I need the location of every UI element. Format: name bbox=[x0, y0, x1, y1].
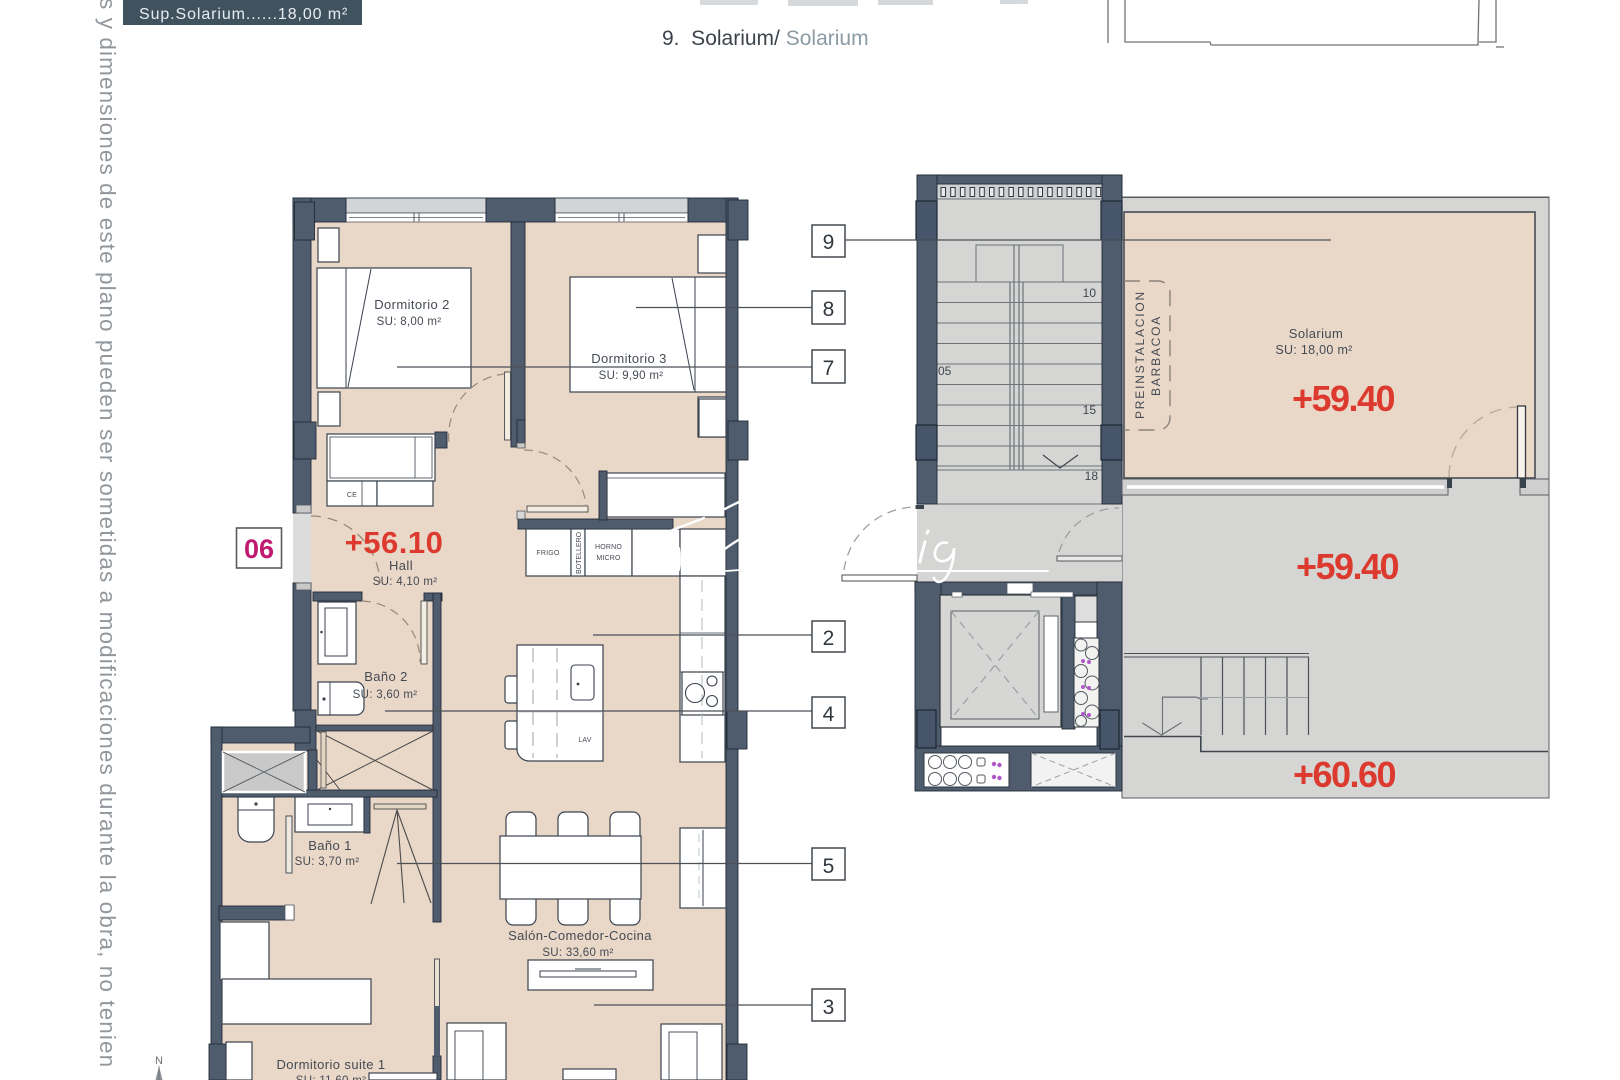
svg-text:4: 4 bbox=[823, 703, 835, 726]
svg-text:SU: 4,10 m²: SU: 4,10 m² bbox=[373, 576, 438, 588]
svg-text:SU: 3,60 m²: SU: 3,60 m² bbox=[353, 689, 418, 701]
svg-text:Baño 1: Baño 1 bbox=[308, 838, 352, 853]
svg-text:HORNO: HORNO bbox=[595, 544, 622, 551]
svg-text:Dormitorio 2: Dormitorio 2 bbox=[374, 297, 450, 312]
svg-text:3: 3 bbox=[823, 996, 835, 1019]
svg-text:+59.40: +59.40 bbox=[1292, 378, 1395, 419]
svg-text:10: 10 bbox=[1083, 286, 1097, 300]
svg-text:Salón-Comedor-Cocina: Salón-Comedor-Cocina bbox=[508, 928, 652, 943]
svg-text:N: N bbox=[155, 1055, 163, 1067]
svg-text:BOTELLERO: BOTELLERO bbox=[576, 531, 583, 574]
svg-text:5: 5 bbox=[823, 855, 835, 878]
svg-text:18: 18 bbox=[1085, 469, 1099, 483]
svg-text:FRIGO: FRIGO bbox=[536, 550, 560, 557]
svg-text:Solarium: Solarium bbox=[1289, 326, 1344, 341]
svg-text:s y dimensiones de este plano: s y dimensiones de este plano pueden ser… bbox=[95, 0, 120, 1068]
svg-text:+56.10: +56.10 bbox=[345, 525, 444, 560]
svg-text:PREINSTALACION: PREINSTALACION bbox=[1133, 290, 1147, 419]
svg-text:LAV: LAV bbox=[578, 737, 591, 744]
svg-text:SU: 18,00 m²: SU: 18,00 m² bbox=[1275, 343, 1352, 357]
svg-text:06: 06 bbox=[244, 534, 274, 564]
svg-text:2: 2 bbox=[823, 627, 835, 650]
svg-text:Sup.Solarium......18,00 m²: Sup.Solarium......18,00 m² bbox=[139, 6, 348, 23]
svg-text:9: 9 bbox=[823, 231, 835, 254]
svg-text:SU: 9,90 m²: SU: 9,90 m² bbox=[599, 370, 664, 382]
svg-text:SU: 3,70 m²: SU: 3,70 m² bbox=[295, 856, 360, 868]
svg-text:05: 05 bbox=[938, 364, 952, 378]
svg-text:Hall: Hall bbox=[389, 558, 413, 573]
svg-text:SU: 8,00 m²: SU: 8,00 m² bbox=[377, 316, 442, 328]
svg-text:8: 8 bbox=[823, 298, 835, 321]
svg-text:15: 15 bbox=[1083, 403, 1097, 417]
svg-text:7: 7 bbox=[823, 357, 835, 380]
svg-text:SU: 33,60 m²: SU: 33,60 m² bbox=[542, 947, 613, 959]
svg-text:Baño 2: Baño 2 bbox=[364, 669, 408, 684]
svg-text:MICRO: MICRO bbox=[596, 555, 621, 562]
svg-text:Dormitorio suite 1: Dormitorio suite 1 bbox=[276, 1057, 385, 1072]
svg-text:SU: 11,60 m²: SU: 11,60 m² bbox=[296, 1075, 367, 1080]
svg-text:CE: CE bbox=[347, 492, 357, 499]
svg-text:9. Solarium/ Solarium: 9. Solarium/ Solarium bbox=[662, 27, 869, 50]
svg-text:+59.40: +59.40 bbox=[1296, 546, 1399, 587]
svg-text:+60.60: +60.60 bbox=[1293, 754, 1396, 795]
svg-text:Dormitorio 3: Dormitorio 3 bbox=[591, 351, 667, 366]
svg-text:BARBACOA: BARBACOA bbox=[1149, 315, 1163, 396]
